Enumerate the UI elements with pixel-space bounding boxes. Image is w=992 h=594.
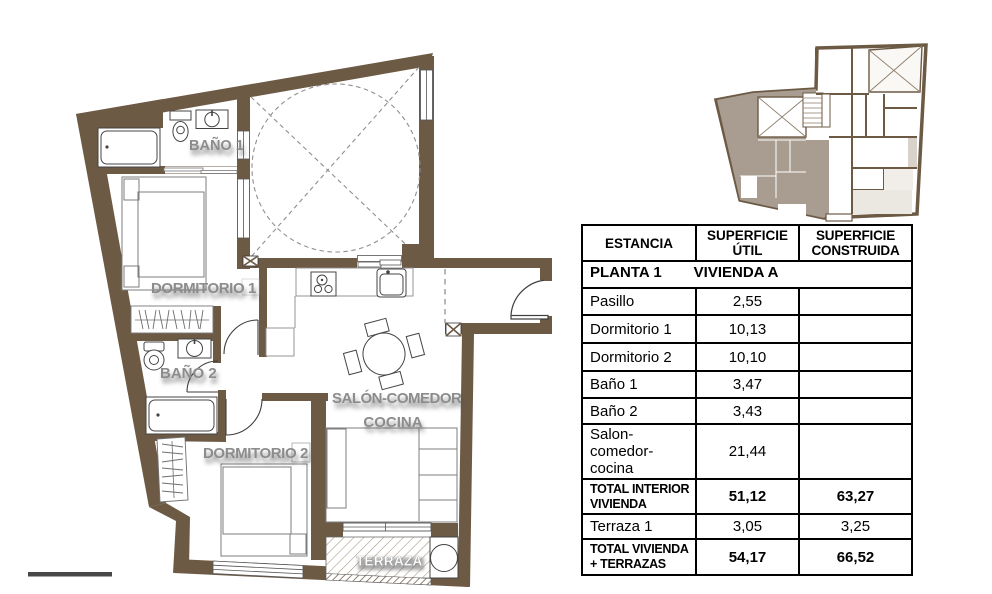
- svg-text:SALÓN-COMEDOR: SALÓN-COMEDOR: [332, 389, 462, 407]
- svg-text:DORMITORIO 2: DORMITORIO 2: [203, 445, 308, 462]
- svg-text:BAÑO 1: BAÑO 1: [189, 136, 244, 154]
- svg-text:TERRAZA: TERRAZA: [356, 554, 423, 569]
- svg-text:DORMITORIO 1: DORMITORIO 1: [151, 280, 256, 297]
- svg-text:COCINA: COCINA: [363, 414, 422, 431]
- svg-text:BAÑO 2: BAÑO 2: [160, 364, 217, 382]
